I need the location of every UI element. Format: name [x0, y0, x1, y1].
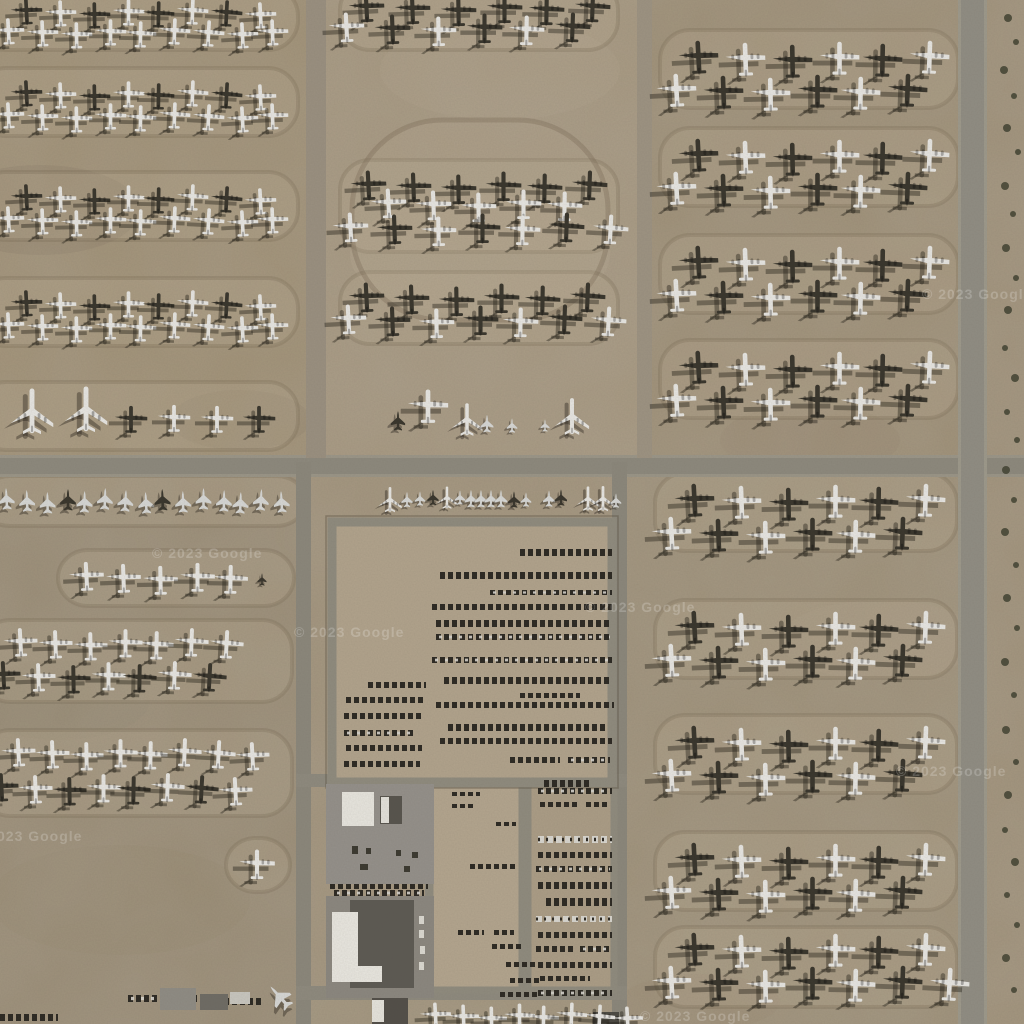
shrub	[1004, 791, 1012, 799]
road	[306, 0, 326, 458]
satellite-map[interactable]: © 2023 Google© 2023 Google© 2023 Google©…	[0, 0, 1024, 1024]
shrub	[1002, 345, 1008, 351]
shrub	[1004, 306, 1012, 314]
building	[419, 916, 424, 924]
shrub	[1011, 858, 1019, 866]
shrub	[1010, 211, 1016, 217]
shrub	[1001, 658, 1009, 666]
shrub	[1003, 594, 1011, 602]
shrub	[1011, 374, 1019, 382]
road	[637, 0, 652, 458]
shrub	[1002, 954, 1010, 962]
road	[961, 0, 984, 1024]
building	[396, 850, 401, 856]
building	[381, 797, 389, 823]
shrub	[1000, 66, 1008, 74]
shrub	[1014, 922, 1020, 928]
shrub	[1002, 244, 1010, 252]
building	[366, 848, 371, 854]
road	[296, 462, 311, 1024]
shrub	[1011, 497, 1017, 503]
road	[958, 0, 961, 1024]
building	[360, 864, 368, 870]
shrub	[1013, 275, 1019, 281]
shrub	[1004, 14, 1012, 22]
tow-lane	[0, 0, 298, 50]
building	[200, 994, 228, 1010]
shrub	[1002, 726, 1010, 734]
shrub	[1002, 466, 1010, 474]
shrub	[1001, 182, 1009, 190]
building	[332, 966, 382, 982]
shrub	[1004, 409, 1010, 415]
satellite-imagery	[0, 0, 1024, 1024]
building	[419, 962, 424, 970]
shrub	[1013, 759, 1019, 765]
building	[420, 946, 425, 954]
shrub	[1013, 39, 1019, 45]
building	[352, 846, 358, 854]
storage-yard	[430, 784, 522, 990]
road	[0, 458, 1024, 474]
shrub	[1014, 437, 1020, 443]
shrub	[1002, 827, 1008, 833]
shrub	[1013, 562, 1019, 568]
building	[404, 866, 410, 872]
shrub	[1001, 528, 1009, 536]
shrub	[1014, 625, 1020, 631]
building	[419, 930, 424, 938]
building	[230, 992, 250, 1004]
shrub	[1004, 892, 1010, 898]
shrub	[1011, 93, 1017, 99]
road	[0, 455, 1024, 458]
road	[984, 0, 987, 1024]
building	[412, 852, 418, 858]
building	[160, 988, 196, 1010]
shrub	[1003, 124, 1011, 132]
shrub	[1011, 692, 1017, 698]
building	[372, 1000, 384, 1022]
building	[342, 792, 374, 826]
shrub	[1011, 987, 1017, 993]
road	[0, 474, 1024, 477]
shrub	[1015, 149, 1021, 155]
